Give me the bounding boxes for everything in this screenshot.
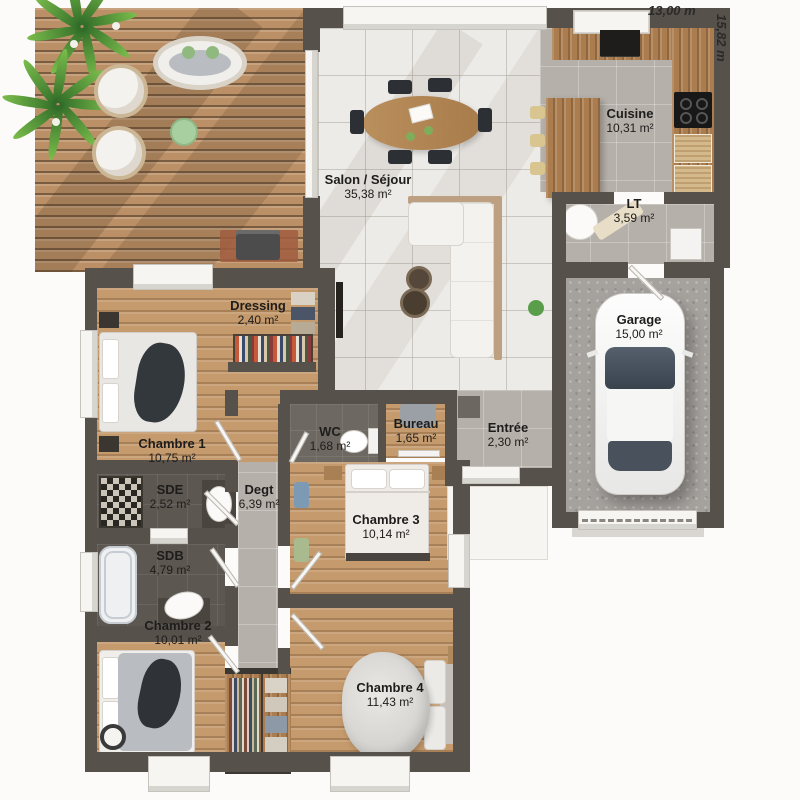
wall [280, 390, 455, 404]
room-area: 11,43 m² [356, 695, 423, 709]
wall [303, 196, 320, 272]
window [448, 534, 470, 588]
wall [278, 648, 290, 674]
room-label-wc: WC1,68 m² [310, 424, 351, 453]
bbq-grill [236, 230, 280, 260]
cabinet-door [674, 165, 712, 195]
dining-chair [428, 78, 452, 92]
floor-plan: Salon / Séjour35,38 m² Cuisine10,31 m² L… [0, 0, 800, 800]
room-label-garage: Garage15,00 m² [615, 312, 662, 341]
room-name: SDE [150, 482, 191, 497]
kitchen-island [546, 98, 600, 198]
room-area: 10,31 m² [606, 121, 653, 135]
green-cushion [182, 46, 195, 59]
wall [664, 192, 714, 204]
window [80, 552, 98, 612]
dressing-clothes-rack [233, 334, 313, 364]
bay-window [343, 6, 547, 30]
room-label-chambre4: Chambre 411,43 m² [356, 680, 423, 709]
room-name: Entrée [488, 420, 529, 435]
room-area: 2,30 m² [488, 435, 529, 449]
burner [696, 112, 708, 124]
pillow [102, 383, 119, 423]
room-label-chambre2: Chambre 210,01 m² [144, 618, 211, 647]
office-desk [398, 450, 440, 457]
dressing-shelf-box [291, 322, 315, 334]
folded-clothes [265, 678, 287, 693]
room-area: 1,65 m² [394, 431, 439, 445]
room-label-bureau: Bureau1,65 m² [394, 416, 439, 445]
terrace-round-chair [94, 64, 148, 118]
coffee-table [400, 288, 430, 318]
pillow [102, 339, 119, 379]
sliding-door [305, 50, 318, 198]
wall [552, 192, 566, 268]
room-area: 2,52 m² [150, 497, 191, 511]
hood-vent [600, 30, 640, 56]
bar-stool [530, 162, 545, 175]
room-name: LT [614, 196, 655, 211]
dining-chair [388, 150, 412, 164]
window [80, 330, 98, 418]
pillow [351, 469, 387, 489]
pillow [389, 469, 425, 489]
burner [696, 98, 708, 110]
room-area: 10,14 m² [352, 527, 419, 541]
tv-unit [336, 282, 343, 338]
room-area: 10,75 m² [138, 451, 205, 465]
plate [424, 126, 433, 135]
room-area: 15,00 m² [615, 327, 662, 341]
room-name: Garage [615, 312, 662, 327]
window [330, 756, 410, 792]
dining-chair [350, 110, 364, 134]
flower-icon [70, 40, 78, 48]
wall [278, 594, 453, 608]
room-name: WC [310, 424, 351, 439]
car-rear-window [608, 441, 672, 471]
room-label-salon: Salon / Séjour35,38 m² [325, 172, 412, 201]
duvet-fold-line [346, 491, 430, 493]
plan-width-dimension: 13,00 m [648, 3, 696, 18]
burner [680, 112, 692, 124]
room-area: 10,01 m² [144, 633, 211, 647]
room-name: Chambre 2 [144, 618, 211, 633]
wall [85, 752, 470, 772]
room-label-degt: Degt6,39 m² [239, 482, 280, 511]
room-label-cuisine: Cuisine10,31 m² [606, 106, 653, 135]
pillow [102, 657, 119, 699]
round-rug [100, 724, 126, 750]
plan-height-dimension: 15,82 m [714, 14, 729, 62]
wall [303, 28, 320, 52]
garage-door-dashes [582, 519, 692, 522]
bedroom3-blue-chair [294, 482, 309, 508]
window [133, 264, 213, 290]
sofa-seat [408, 202, 464, 246]
room-name: Salon / Séjour [325, 172, 412, 187]
wall [552, 278, 566, 528]
wall [552, 262, 628, 278]
door-sill [150, 528, 188, 544]
room-area: 35,38 m² [325, 187, 412, 201]
room-name: Cuisine [606, 106, 653, 121]
dining-chair [428, 150, 452, 164]
nightstand [99, 436, 119, 452]
washing-machine [670, 228, 702, 260]
wall [445, 390, 457, 470]
cabinet-door [674, 134, 712, 163]
car-roof [607, 389, 673, 441]
sofa-cushion [169, 50, 231, 76]
nightstand [324, 466, 342, 480]
wall [278, 462, 290, 546]
room-label-sdb: SDB4,79 m² [150, 548, 191, 577]
room-area: 6,39 m² [239, 497, 280, 511]
room-name: Bureau [394, 416, 439, 431]
room-area: 2,40 m² [230, 313, 286, 327]
front-door [462, 466, 520, 484]
shower [99, 476, 143, 528]
room-label-chambre3: Chambre 310,14 m² [352, 512, 419, 541]
flower-icon [112, 22, 120, 30]
wall [228, 362, 316, 372]
laundry-basin [562, 204, 598, 240]
room-label-dressing: Dressing2,40 m² [230, 298, 286, 327]
dining-chair [478, 108, 492, 132]
dining-chair [388, 80, 412, 94]
bathtub-inner [104, 551, 132, 619]
plate [406, 132, 415, 141]
room-name: Chambre 4 [356, 680, 423, 695]
room-label-lt: LT3,59 m² [614, 196, 655, 225]
terrace-oval-sofa [153, 36, 247, 90]
room-area: 3,59 m² [614, 211, 655, 225]
green-cushion [206, 46, 219, 59]
bar-stool [530, 106, 545, 119]
room-label-sde: SDE2,52 m² [150, 482, 191, 511]
room-area: 4,79 m² [150, 563, 191, 577]
room-label-entree: Entrée2,30 m² [488, 420, 529, 449]
entry-doormat [458, 396, 480, 418]
wall [710, 262, 724, 528]
folded-clothes [265, 737, 287, 752]
dining-table [363, 96, 481, 150]
wall [318, 268, 335, 398]
room-area: 1,68 m² [310, 439, 351, 453]
folded-clothes [265, 716, 287, 733]
wall [378, 392, 386, 462]
bar-stool [530, 134, 545, 147]
terrace-round-chair [92, 126, 146, 180]
car-windshield [605, 347, 675, 389]
potted-plant [528, 300, 544, 316]
cooktop [674, 92, 712, 128]
wall [453, 460, 470, 772]
wall [278, 404, 290, 462]
room-name: SDB [150, 548, 191, 563]
dark-throw-blanket [130, 340, 190, 427]
nightstand [99, 312, 119, 328]
bedroom3-green-chair [294, 538, 309, 562]
garage-door [578, 510, 697, 530]
room-name: Chambre 3 [352, 512, 419, 527]
room-name: Chambre 1 [138, 436, 205, 451]
flower-icon [52, 118, 60, 126]
room-label-chambre1: Chambre 110,75 m² [138, 436, 205, 465]
burner [680, 98, 692, 110]
room-name: Degt [239, 482, 280, 497]
dressing-shelf-box [291, 292, 315, 305]
window [148, 756, 210, 792]
dressing-shelf-box [291, 307, 315, 320]
bathtub [99, 546, 137, 624]
wall [225, 390, 238, 416]
sofa-frame [494, 200, 502, 360]
bed-bedroom1 [99, 332, 197, 432]
folded-clothes [265, 697, 287, 712]
terrace-pouf [170, 118, 198, 146]
room-name: Dressing [230, 298, 286, 313]
bed-foot-frame [346, 553, 430, 561]
